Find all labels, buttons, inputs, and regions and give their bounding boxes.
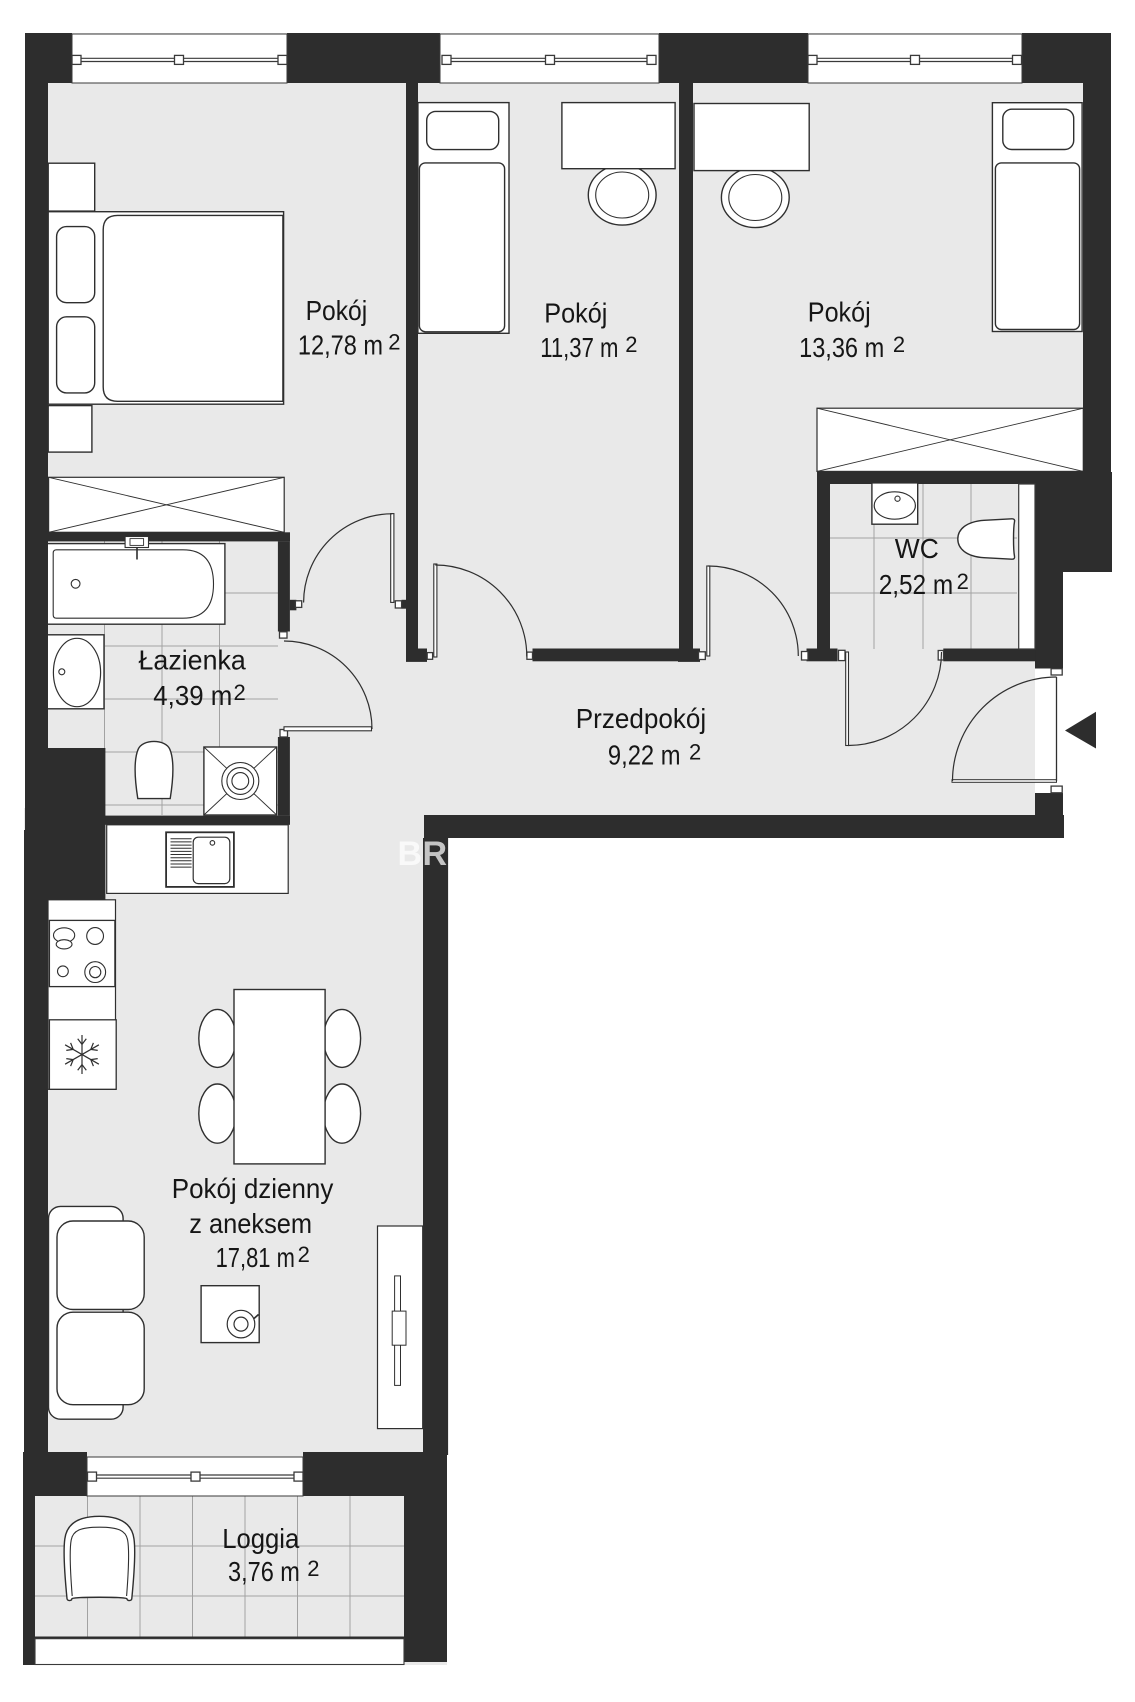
svg-text:11,37 m: 11,37 m [540,332,618,363]
svg-text:WC: WC [895,533,939,564]
svg-text:Loggia: Loggia [222,1523,299,1554]
svg-text:17,81 m: 17,81 m [216,1242,295,1273]
svg-text:Pokój: Pokój [808,297,871,328]
svg-text:Pokój dzienny: Pokój dzienny [172,1173,333,1204]
svg-text:2: 2 [893,332,905,357]
svg-text:9,22 m: 9,22 m [608,740,681,771]
svg-text:12,78 m: 12,78 m [298,330,383,361]
svg-text:2: 2 [957,569,969,594]
svg-text:3,76 m: 3,76 m [228,1556,300,1587]
svg-text:Przedpokój: Przedpokój [576,703,706,734]
svg-text:2: 2 [388,330,400,355]
svg-text:Pokój: Pokój [544,298,607,329]
svg-text:2: 2 [625,332,637,357]
svg-text:2: 2 [298,1242,310,1267]
svg-text:2,52 m: 2,52 m [879,569,954,600]
svg-text:Łazienka: Łazienka [139,644,247,675]
svg-text:2: 2 [689,740,701,765]
svg-text:z aneksem: z aneksem [189,1208,312,1239]
svg-text:Pokój: Pokój [306,295,368,326]
svg-text:2: 2 [307,1556,319,1581]
svg-text:2: 2 [234,680,246,705]
svg-text:13,36 m: 13,36 m [799,332,884,363]
svg-text:4,39 m: 4,39 m [153,680,232,711]
svg-text:BRAWO: BRAWO [398,835,531,873]
